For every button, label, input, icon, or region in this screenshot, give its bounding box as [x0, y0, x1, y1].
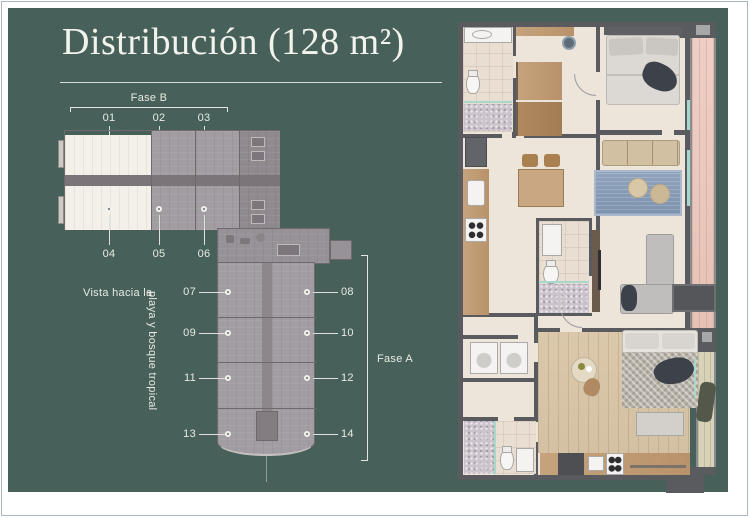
window-living [687, 150, 690, 206]
entry-step-block [666, 473, 704, 493]
bed2-bench [636, 412, 684, 436]
dining-chair-1 [522, 154, 538, 167]
tv-screen [598, 250, 601, 290]
dot-06 [201, 206, 207, 212]
bed2-pillow-left [625, 333, 659, 349]
wall-bed1-living-a [600, 130, 662, 135]
page-title: Distribución (128 m²) [62, 20, 405, 64]
dot-14 [304, 431, 310, 437]
elevator-cell-4 [251, 214, 265, 224]
dot-12 [304, 375, 310, 381]
brochure-page: { "title": "Distribución (128 m²)", "sit… [0, 0, 750, 518]
bath1-sink [472, 30, 492, 39]
unit-divider-2 [195, 131, 196, 230]
bath3-toilet [500, 450, 514, 470]
tower-divider-3 [218, 408, 316, 409]
dining-table [518, 169, 564, 207]
bath1-shower-glass [464, 101, 512, 103]
apartment-floorplan-render [458, 22, 718, 498]
fridge [465, 137, 487, 167]
kitchenette-cabinet [558, 453, 584, 475]
dining-chair-2 [544, 154, 560, 167]
green-panel: Distribución (128 m²) Fase B 01 02 03 04… [8, 8, 728, 492]
bath2-shower [539, 284, 589, 313]
leader-07 [199, 292, 225, 293]
unit-label-07: 07 [156, 286, 196, 298]
fase-a-label: Fase A [377, 353, 413, 365]
dot-08 [304, 289, 310, 295]
bath3-shower [464, 421, 494, 474]
tower-divider-2 [218, 362, 316, 363]
amenity-mark-1 [226, 235, 234, 243]
fase-b-building [64, 130, 280, 230]
dot-11 [225, 375, 231, 381]
side-table-plant [578, 363, 585, 370]
elevator-cell-1 [251, 137, 265, 147]
wall-laundry-top [462, 335, 518, 339]
planter-mid-box [702, 332, 712, 342]
wall-v2-b [596, 100, 600, 176]
washer [470, 342, 498, 374]
unit-label-04: 04 [97, 248, 121, 260]
vanity-stool [562, 36, 576, 50]
bath3-shower-glass [494, 421, 496, 474]
dot-05 [156, 206, 162, 212]
window-bedroom2 [694, 358, 696, 398]
leader-10 [313, 333, 338, 334]
kitchen-stove [465, 218, 487, 242]
view-note-line1: Vista hacia la [83, 287, 152, 299]
leader-13 [199, 434, 225, 435]
kitchenette-bar-edge [630, 465, 686, 468]
lsofa-vertical [646, 234, 674, 290]
dryer [500, 342, 528, 374]
wardrobe-upper [516, 62, 562, 100]
fase-a-bracket [361, 255, 368, 461]
side-table-cup [586, 366, 592, 372]
fase-b-label: Fase B [70, 92, 228, 104]
living-sofa [602, 140, 680, 166]
dot-10 [304, 330, 310, 336]
bath2-shower-glass [539, 281, 589, 283]
amenity-mark-3 [256, 233, 265, 242]
media-console [672, 284, 716, 312]
podium-elevator [277, 244, 300, 256]
tower-pier-line [266, 456, 267, 482]
title-underline [60, 82, 442, 83]
pouf-2 [650, 184, 670, 204]
unit-label-05: 05 [147, 248, 171, 260]
bath1-toilet [466, 74, 480, 94]
unit-label-11: 11 [156, 372, 196, 384]
elevator-cell-2 [251, 151, 265, 161]
leader-14 [313, 434, 338, 435]
kitchenette-stove [606, 453, 624, 475]
unit-label-02: 02 [147, 112, 171, 124]
elevator-cell-3 [251, 200, 265, 210]
bed1-headboard [604, 27, 682, 35]
leader-12 [313, 378, 338, 379]
unit-label-03: 03 [192, 112, 216, 124]
podium-wing [330, 240, 352, 260]
leader-11 [199, 378, 225, 379]
bath1-shower [464, 104, 512, 131]
wall-bed1-living-b [674, 130, 686, 135]
view-note-line2: playa y bosque tropical [146, 291, 158, 421]
unit-label-01: 01 [97, 112, 121, 124]
entry-cabinet [516, 27, 574, 36]
unit-divider-1 [151, 131, 152, 230]
amenity-mark-2 [240, 238, 250, 244]
lsofa-throw [621, 285, 637, 311]
leader-08 [313, 292, 338, 293]
window-bedroom1 [687, 100, 690, 130]
bed1-pillow-right [646, 37, 679, 56]
leader-05 [159, 215, 160, 245]
pouf-1 [628, 178, 648, 198]
leader-06 [204, 215, 205, 245]
bed2-pillow-right [662, 333, 695, 349]
dot-13 [225, 431, 231, 437]
podium-junction [217, 228, 330, 264]
bath2-vanity [542, 224, 562, 256]
bath3-vanity [516, 448, 534, 472]
leader-04 [109, 215, 110, 245]
dot-09 [225, 330, 231, 336]
wall-v2-a [596, 26, 600, 72]
tower-stair-core [256, 411, 278, 441]
planter-top-box [696, 25, 710, 35]
bed1-pillow-left [609, 37, 644, 56]
tower-divider-1 [218, 317, 316, 318]
unit-divider-3 [239, 131, 240, 230]
wardrobe-lower [516, 102, 562, 136]
unit-label-09: 09 [156, 327, 196, 339]
fase-a-tower [217, 262, 315, 456]
wall-laundry-bottom [462, 378, 534, 382]
unit-label-06: 06 [192, 248, 216, 260]
unit-label-13: 13 [156, 428, 196, 440]
dot-04 [106, 206, 112, 212]
corridor-band [65, 175, 280, 186]
leader-09 [199, 333, 225, 334]
kitchenette-sink [588, 456, 604, 471]
dot-07 [225, 289, 231, 295]
kitchen-sink [467, 180, 485, 206]
